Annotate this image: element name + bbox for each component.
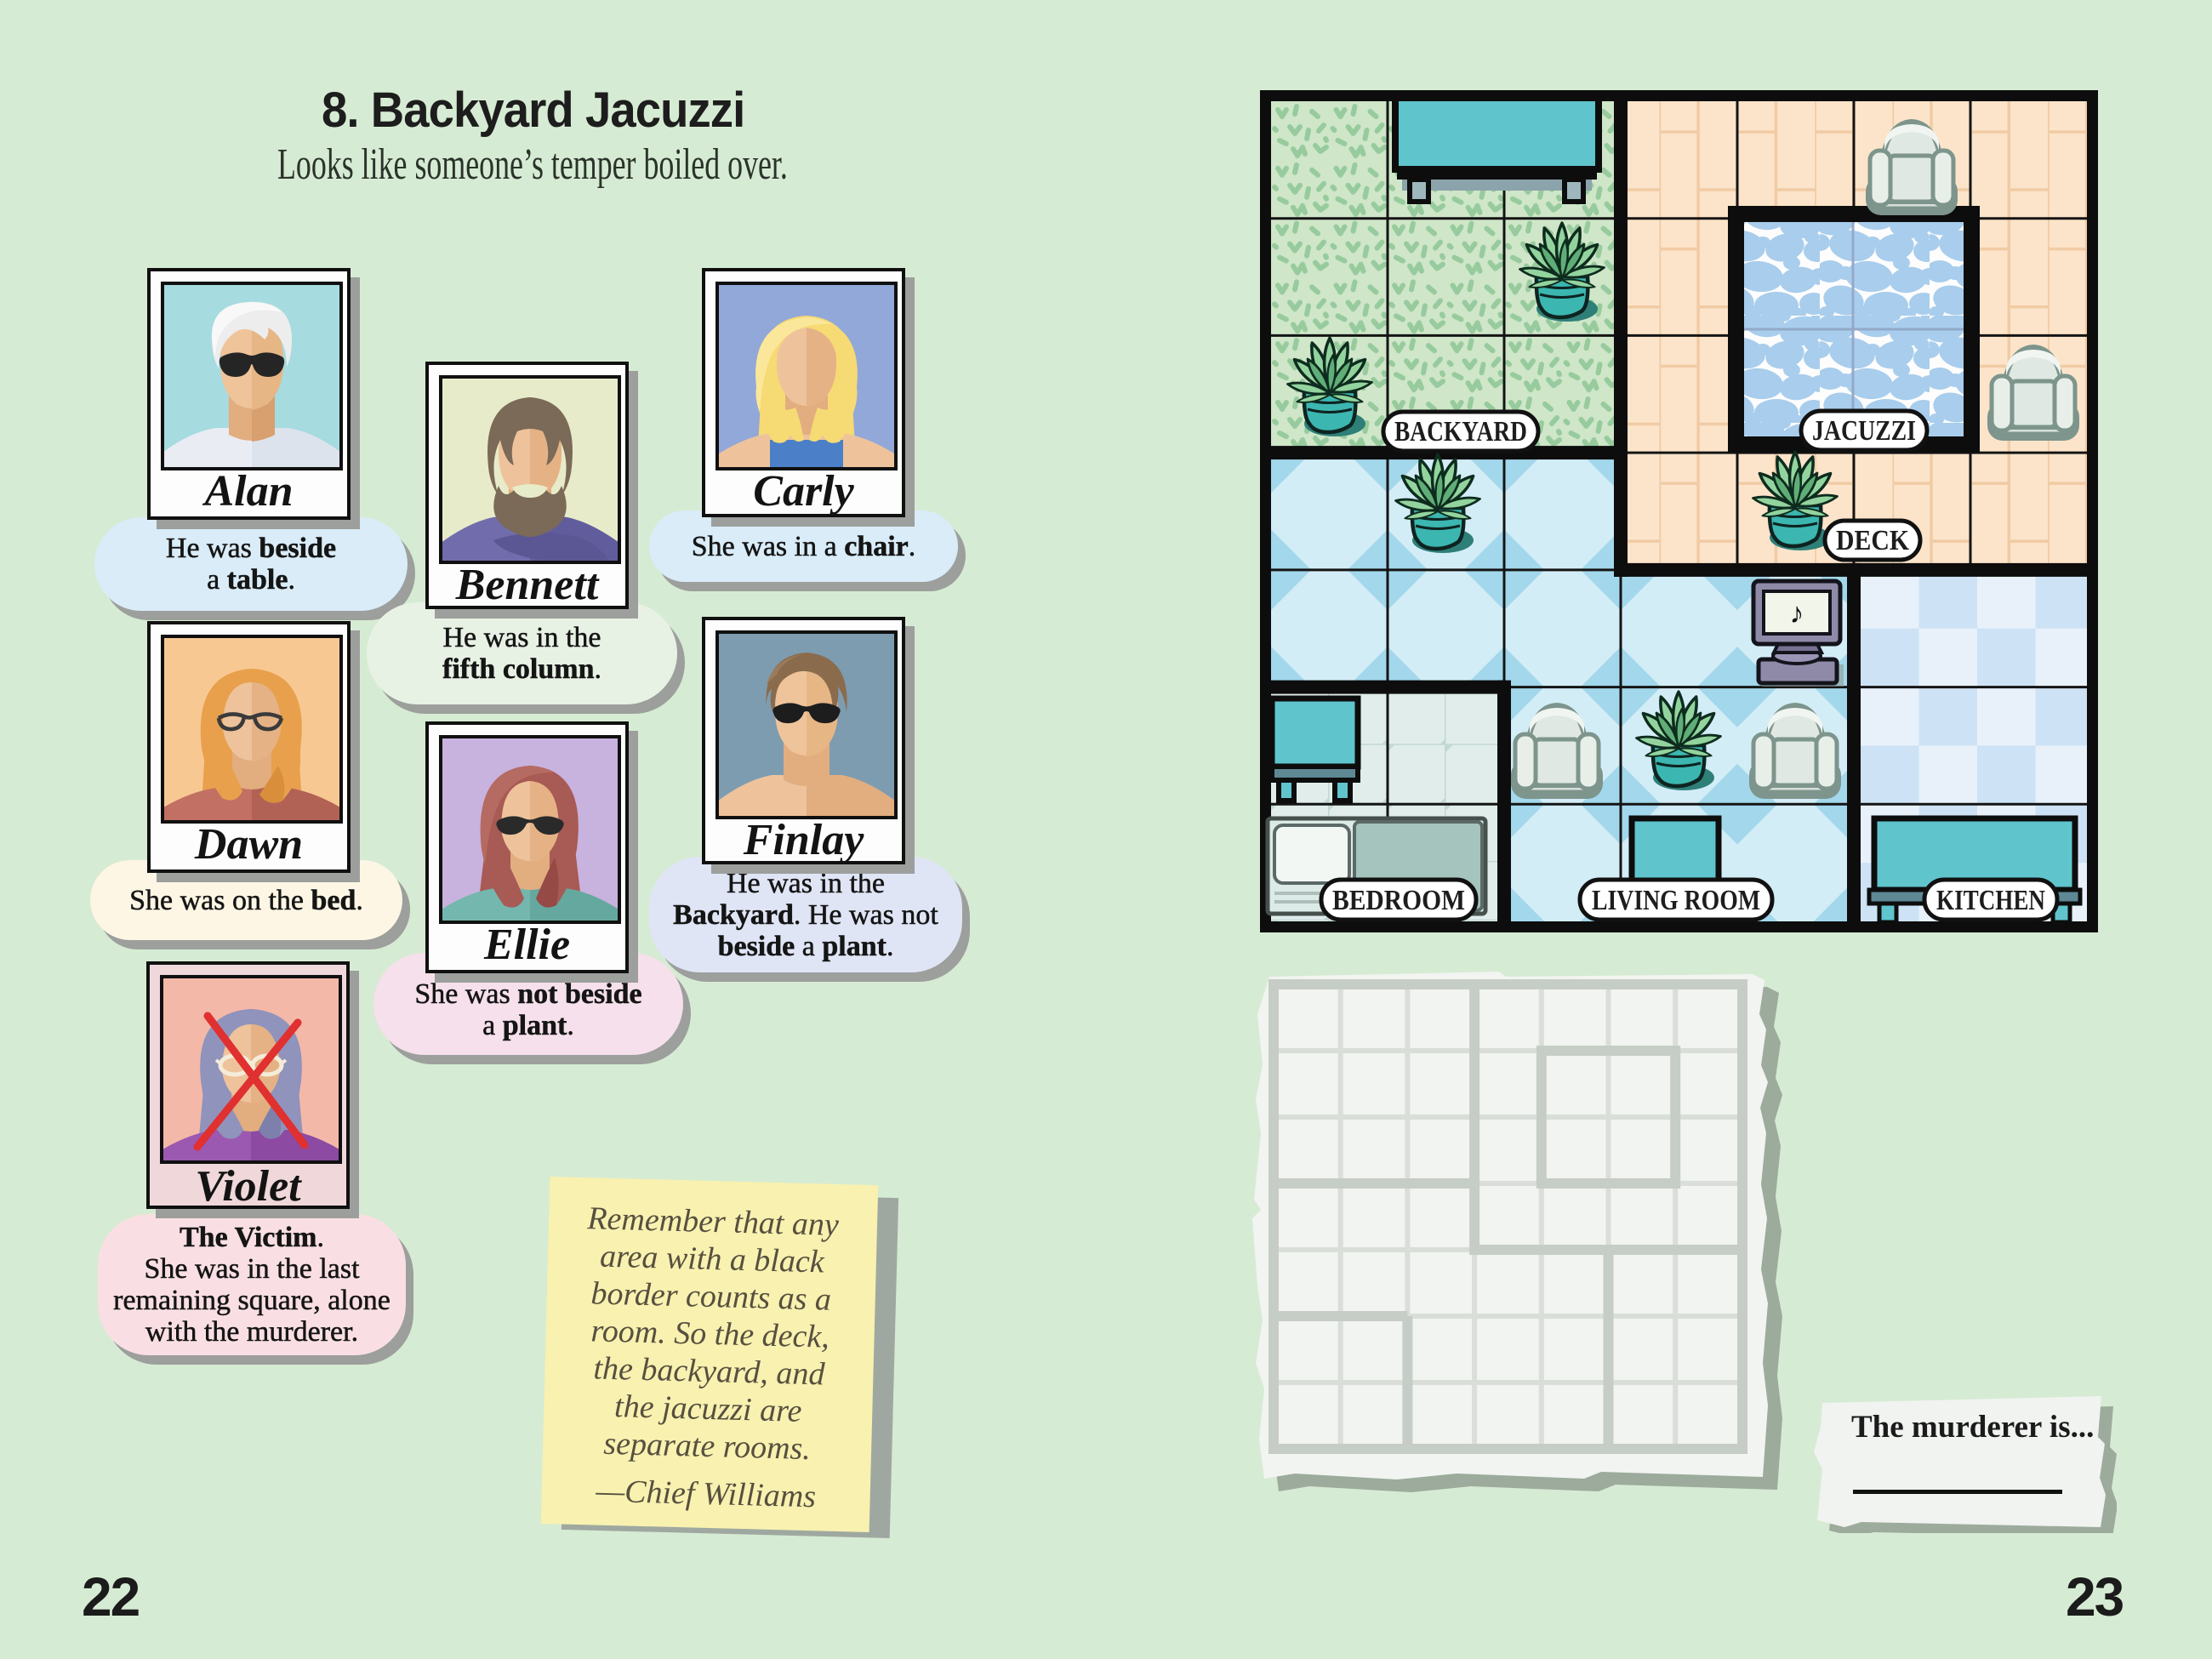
svg-text:The murderer is...: The murderer is... (1851, 1410, 2094, 1445)
svg-text:KITCHEN: KITCHEN (1936, 885, 2045, 916)
svg-text:DECK: DECK (1836, 525, 1909, 556)
svg-text:LIVING ROOM: LIVING ROOM (1592, 885, 1760, 916)
svg-text:BEDROOM: BEDROOM (1332, 885, 1465, 916)
svg-text:BACKYARD: BACKYARD (1394, 416, 1527, 448)
svg-text:JACUZZI: JACUZZI (1812, 415, 1916, 447)
svg-text:♪: ♪ (1790, 597, 1804, 630)
